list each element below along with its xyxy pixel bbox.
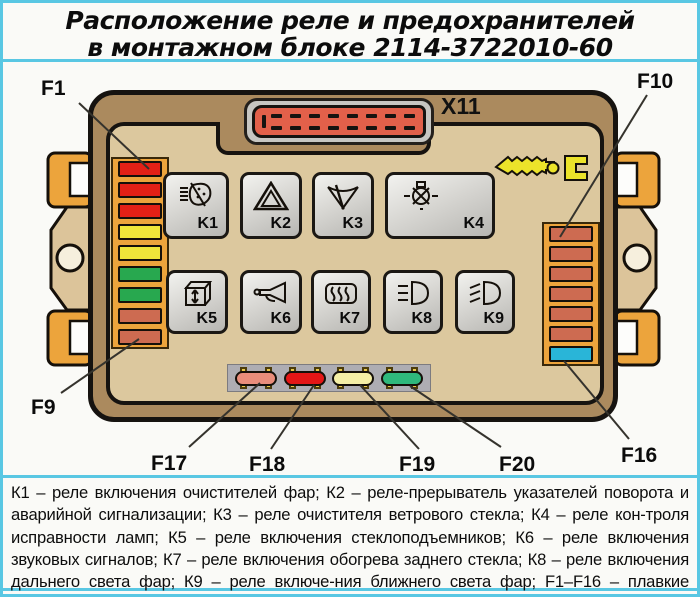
fuse-relay-diagram-page: Расположение реле и предохранителей в мо…	[0, 0, 700, 597]
callout-f1: F1	[41, 77, 66, 101]
f10-leader-line	[560, 95, 647, 237]
callout-f19: F19	[399, 453, 435, 477]
f17-leader-line	[189, 383, 260, 447]
legend-text: К1 – реле включения очистителей фар; К2 …	[3, 475, 697, 591]
title-line-2: в монтажном блоке 2114-3722010-60	[3, 34, 697, 61]
callout-f16: F16	[621, 444, 657, 468]
callout-leader-lines	[3, 65, 700, 475]
title-line-1: Расположение реле и предохранителей	[3, 7, 697, 34]
f19-leader-line	[360, 385, 419, 449]
callout-f17: F17	[151, 452, 187, 476]
mounting-block-diagram: X11 K1 K2	[3, 65, 700, 475]
callout-f10: F10	[637, 70, 673, 94]
f9-leader-line	[61, 339, 139, 393]
f20-leader-line	[410, 386, 501, 447]
callout-f18: F18	[249, 453, 285, 477]
f16-leader-line	[564, 361, 629, 439]
callout-f20: F20	[499, 453, 535, 477]
page-title: Расположение реле и предохранителей в мо…	[3, 3, 697, 62]
f18-leader-line	[271, 385, 314, 449]
f1-leader-line	[79, 103, 149, 169]
callout-f9: F9	[31, 396, 56, 420]
